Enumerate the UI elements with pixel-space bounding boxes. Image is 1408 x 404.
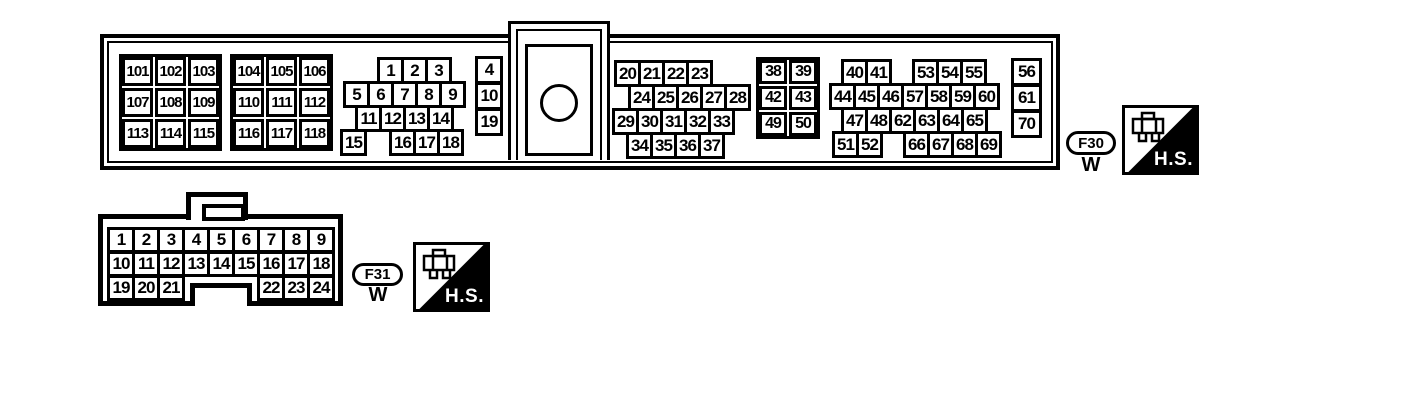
f30-pin-row-53-55: 535455 xyxy=(912,59,987,86)
pin-22: 22 xyxy=(257,275,285,301)
pin-21: 21 xyxy=(157,275,185,301)
pin-111: 111 xyxy=(266,88,297,117)
f30-pin-row-34-37: 34353637 xyxy=(626,132,725,159)
f30-mounting-hole xyxy=(540,84,578,122)
pin-16: 16 xyxy=(389,129,416,156)
pin-62: 62 xyxy=(889,107,916,134)
hs-label: H.S. xyxy=(1154,149,1193,171)
pin-70: 70 xyxy=(1011,110,1042,138)
pin-4: 4 xyxy=(475,56,503,84)
f30-pin-row-66-69: 66676869 xyxy=(903,131,1002,158)
pin-2: 2 xyxy=(132,227,160,253)
pin-64: 64 xyxy=(937,107,964,134)
f30-pin-block-101-115: 101102103107108109113114115 xyxy=(119,54,222,151)
pin-110: 110 xyxy=(233,88,264,117)
pin-107: 107 xyxy=(122,88,153,117)
pin-101: 101 xyxy=(122,57,153,86)
pin-68: 68 xyxy=(951,131,978,158)
pin-4: 4 xyxy=(182,227,210,253)
pin-18: 18 xyxy=(307,251,335,277)
pin-40: 40 xyxy=(841,59,868,86)
pin-32: 32 xyxy=(684,108,711,135)
pin-52: 52 xyxy=(856,131,883,158)
pin-11: 11 xyxy=(355,105,382,132)
pin-14: 14 xyxy=(427,105,454,132)
pin-19: 19 xyxy=(107,275,135,301)
pin-47: 47 xyxy=(841,107,868,134)
pin-58: 58 xyxy=(925,83,952,110)
pin-23: 23 xyxy=(686,60,713,87)
f31-pin-row-19-21: 192021 xyxy=(107,275,185,301)
pin-15: 15 xyxy=(232,251,260,277)
pin-69: 69 xyxy=(975,131,1002,158)
f30-pin-row-29-33: 2930313233 xyxy=(612,108,735,135)
f30-pin-row-24-28: 2425262728 xyxy=(628,84,751,111)
pin-39: 39 xyxy=(789,60,817,84)
pin-28: 28 xyxy=(724,84,751,111)
pin-38: 38 xyxy=(759,60,787,84)
f31-connector-label: F31 xyxy=(352,263,403,286)
pin-2: 2 xyxy=(401,57,428,84)
pin-9: 9 xyxy=(439,81,466,108)
pin-17: 17 xyxy=(413,129,440,156)
f30-pin-row-44-60: 44454657585960 xyxy=(829,83,1000,110)
f30-pin-block-38-50: 383942434950 xyxy=(756,57,820,139)
pin-30: 30 xyxy=(636,108,663,135)
f31-pin-row-1-9: 123456789 xyxy=(107,227,335,253)
pin-15: 15 xyxy=(340,129,367,156)
pin-25: 25 xyxy=(652,84,679,111)
pin-19: 19 xyxy=(475,108,503,136)
f31-pin-row-10-18: 101112131415161718 xyxy=(107,251,335,277)
pin-51: 51 xyxy=(832,131,859,158)
pin-35: 35 xyxy=(650,132,677,159)
f30-pin-15: 15 xyxy=(340,129,367,156)
pin-13: 13 xyxy=(403,105,430,132)
f30-pin-block-104-118: 104105106110111112116117118 xyxy=(230,54,333,151)
pin-23: 23 xyxy=(282,275,310,301)
hs-badge-f31: H.S. xyxy=(413,242,490,312)
f30-pin-col-56-61-70: 566170 xyxy=(1011,58,1042,138)
pin-12: 12 xyxy=(157,251,185,277)
pin-54: 54 xyxy=(936,59,963,86)
f30-connector-label: F30 xyxy=(1066,131,1116,155)
pin-8: 8 xyxy=(415,81,442,108)
pin-20: 20 xyxy=(614,60,641,87)
pin-26: 26 xyxy=(676,84,703,111)
f31-latch-window xyxy=(202,204,245,221)
pin-103: 103 xyxy=(188,57,219,86)
pin-12: 12 xyxy=(379,105,406,132)
pin-65: 65 xyxy=(961,107,988,134)
pin-66: 66 xyxy=(903,131,930,158)
pin-13: 13 xyxy=(182,251,210,277)
f30-wire-color: W xyxy=(1066,154,1116,177)
hs-badge-f30: H.S. xyxy=(1122,105,1199,175)
pin-27: 27 xyxy=(700,84,727,111)
pin-114: 114 xyxy=(155,119,186,148)
f30-pin-row-40-41: 4041 xyxy=(841,59,892,86)
pin-104: 104 xyxy=(233,57,264,86)
pin-5: 5 xyxy=(207,227,235,253)
f31-bottom-notch xyxy=(190,283,252,306)
pin-33: 33 xyxy=(708,108,735,135)
pin-50: 50 xyxy=(789,112,817,136)
pin-34: 34 xyxy=(626,132,653,159)
pin-3: 3 xyxy=(425,57,452,84)
pin-16: 16 xyxy=(257,251,285,277)
pin-8: 8 xyxy=(282,227,310,253)
pin-21: 21 xyxy=(638,60,665,87)
pin-113: 113 xyxy=(122,119,153,148)
hs-label: H.S. xyxy=(445,286,484,308)
connector-icon xyxy=(1127,110,1171,148)
pin-60: 60 xyxy=(973,83,1000,110)
pin-63: 63 xyxy=(913,107,940,134)
pin-41: 41 xyxy=(865,59,892,86)
pin-108: 108 xyxy=(155,88,186,117)
connector-pinout-diagram: 101102103107108109113114115 104105106110… xyxy=(0,0,1408,404)
pin-37: 37 xyxy=(698,132,725,159)
pin-44: 44 xyxy=(829,83,856,110)
pin-102: 102 xyxy=(155,57,186,86)
pin-6: 6 xyxy=(367,81,394,108)
f31-wire-color: W xyxy=(353,284,403,307)
f30-pin-row-5-9: 56789 xyxy=(343,81,466,108)
pin-10: 10 xyxy=(475,82,503,110)
pin-48: 48 xyxy=(865,107,892,134)
f30-pin-row-11-14: 11121314 xyxy=(355,105,454,132)
f30-pin-row-1-3: 123 xyxy=(377,57,452,84)
pin-53: 53 xyxy=(912,59,939,86)
pin-6: 6 xyxy=(232,227,260,253)
pin-36: 36 xyxy=(674,132,701,159)
pin-56: 56 xyxy=(1011,58,1042,86)
f30-pin-row-51-52: 5152 xyxy=(832,131,883,158)
pin-109: 109 xyxy=(188,88,219,117)
pin-46: 46 xyxy=(877,83,904,110)
pin-20: 20 xyxy=(132,275,160,301)
connector-icon xyxy=(418,247,462,285)
f30-pin-row-47-65: 474862636465 xyxy=(841,107,988,134)
pin-67: 67 xyxy=(927,131,954,158)
pin-117: 117 xyxy=(266,119,297,148)
pin-43: 43 xyxy=(789,86,817,110)
pin-55: 55 xyxy=(960,59,987,86)
pin-115: 115 xyxy=(188,119,219,148)
pin-29: 29 xyxy=(612,108,639,135)
pin-11: 11 xyxy=(132,251,160,277)
pin-7: 7 xyxy=(391,81,418,108)
pin-105: 105 xyxy=(266,57,297,86)
pin-10: 10 xyxy=(107,251,135,277)
pin-116: 116 xyxy=(233,119,264,148)
pin-3: 3 xyxy=(157,227,185,253)
f30-pin-row-16-18: 161718 xyxy=(389,129,464,156)
f31-pin-row-22-24: 222324 xyxy=(257,275,335,301)
pin-118: 118 xyxy=(299,119,330,148)
pin-7: 7 xyxy=(257,227,285,253)
pin-5: 5 xyxy=(343,81,370,108)
pin-61: 61 xyxy=(1011,84,1042,112)
pin-9: 9 xyxy=(307,227,335,253)
pin-57: 57 xyxy=(901,83,928,110)
pin-24: 24 xyxy=(307,275,335,301)
pin-59: 59 xyxy=(949,83,976,110)
pin-106: 106 xyxy=(299,57,330,86)
f30-pin-col-4-10-19: 41019 xyxy=(475,56,503,136)
pin-17: 17 xyxy=(282,251,310,277)
pin-22: 22 xyxy=(662,60,689,87)
pin-24: 24 xyxy=(628,84,655,111)
pin-14: 14 xyxy=(207,251,235,277)
pin-49: 49 xyxy=(759,112,787,136)
pin-31: 31 xyxy=(660,108,687,135)
pin-42: 42 xyxy=(759,86,787,110)
f30-pin-row-20-23: 20212223 xyxy=(614,60,713,87)
pin-1: 1 xyxy=(107,227,135,253)
pin-45: 45 xyxy=(853,83,880,110)
pin-18: 18 xyxy=(437,129,464,156)
pin-112: 112 xyxy=(299,88,330,117)
pin-1: 1 xyxy=(377,57,404,84)
